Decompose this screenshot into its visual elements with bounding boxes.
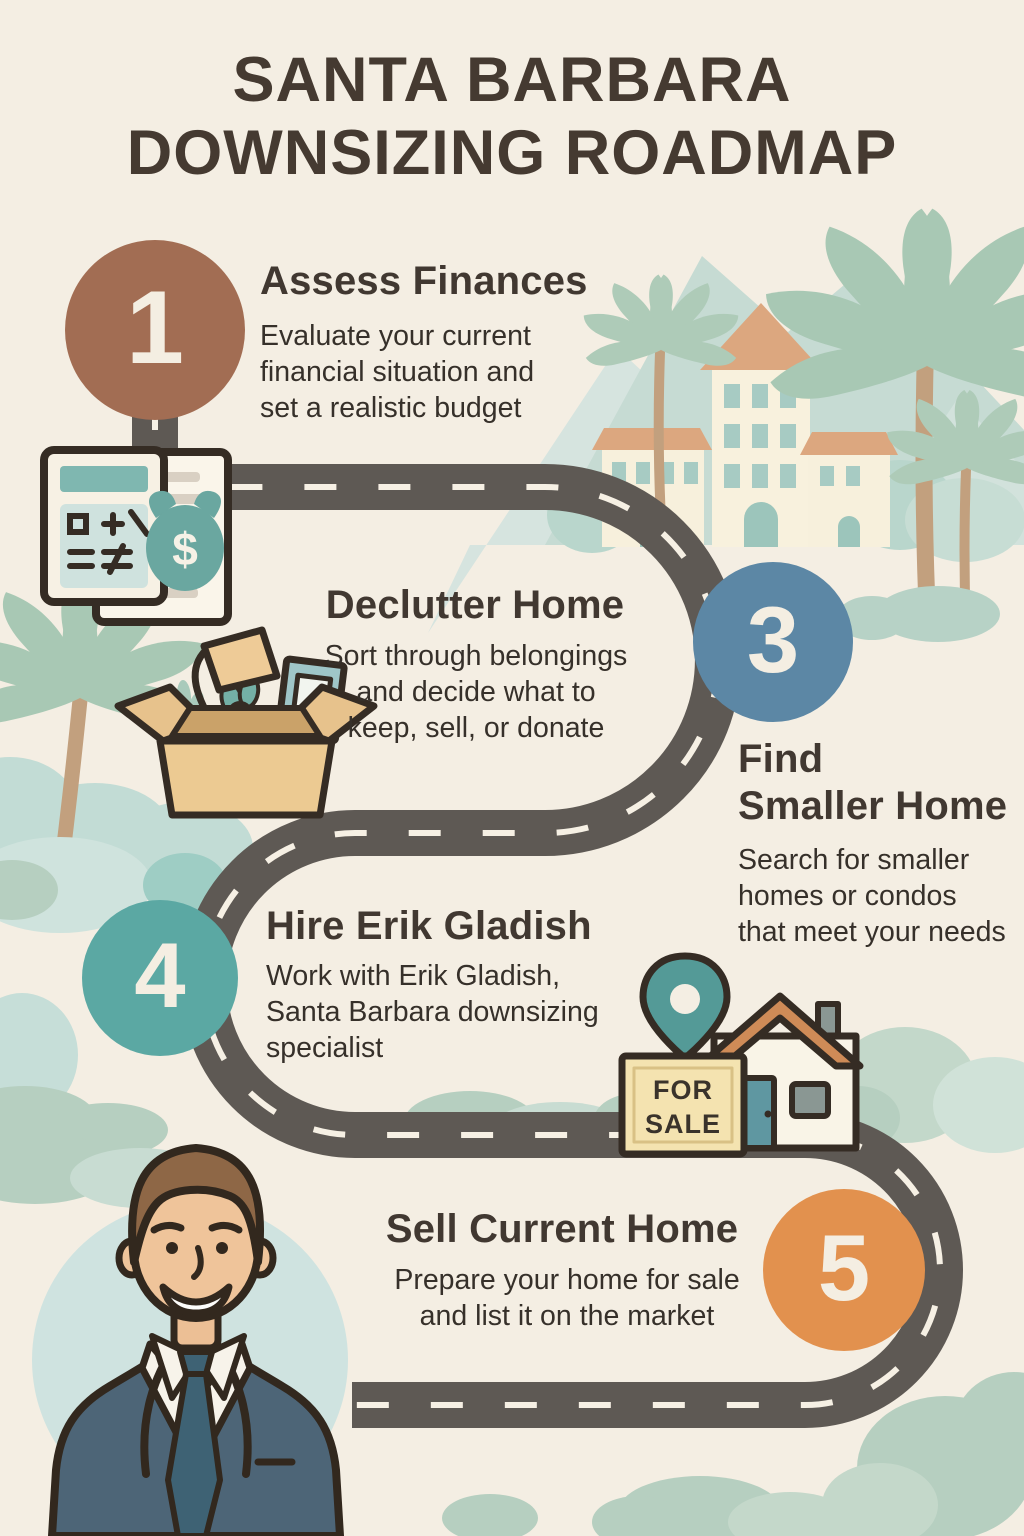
money-bag-icon: $: [146, 491, 224, 591]
step-3-description: Search for smaller homes or condos that …: [738, 842, 1006, 951]
step-1-description: Evaluate your current financial situatio…: [260, 318, 534, 427]
step-1-title: Assess Finances: [260, 258, 588, 305]
page-title: SANTA BARBARA DOWNSIZING ROADMAP: [0, 44, 1024, 190]
for-sale-sign-text: FOR SALE: [622, 1062, 744, 1154]
step-4-title: Hire Erik Gladish: [266, 903, 592, 950]
step-2-title: Declutter Home: [295, 582, 655, 629]
step-4-description: Work with Erik Gladish, Santa Barbara do…: [266, 958, 599, 1067]
step-5-circle: 5: [763, 1189, 925, 1351]
step-3-number: 3: [747, 586, 799, 694]
calculator-icon: [44, 450, 164, 602]
step-5-number: 5: [818, 1214, 870, 1322]
step-4-number: 4: [134, 924, 185, 1029]
step-5-description: Prepare your home for sale and list it o…: [382, 1262, 752, 1334]
infographic-santa-barbara-downsizing-roadmap: $: [0, 0, 1024, 1536]
step-2-description: Sort through belongings and decide what …: [295, 638, 657, 747]
step-5-title: Sell Current Home: [362, 1206, 762, 1253]
step-1-circle: 1: [65, 240, 245, 420]
agent-portrait: [32, 1148, 348, 1536]
step-1-number: 1: [126, 269, 184, 388]
svg-text:$: $: [172, 523, 198, 575]
step-3-title: Find Smaller Home: [738, 736, 1007, 830]
step-3-circle: 3: [693, 562, 853, 722]
step-4-circle: 4: [82, 900, 238, 1056]
